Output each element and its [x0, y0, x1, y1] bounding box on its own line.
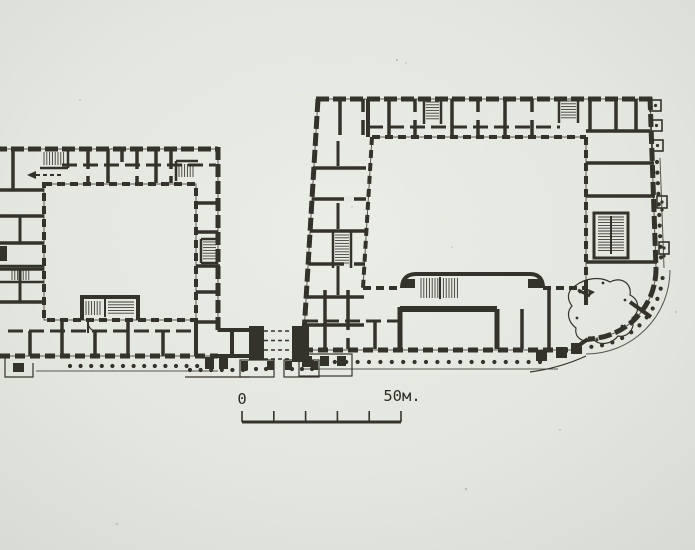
floor-plan-svg: 0 50м. — [0, 0, 695, 550]
scale-max-label: 50м. — [383, 387, 420, 405]
scale-zero-label: 0 — [237, 390, 246, 408]
plan-photo: 0 50м. — [0, 0, 695, 550]
passage-west-pier — [249, 326, 264, 360]
paper-background — [0, 0, 695, 550]
